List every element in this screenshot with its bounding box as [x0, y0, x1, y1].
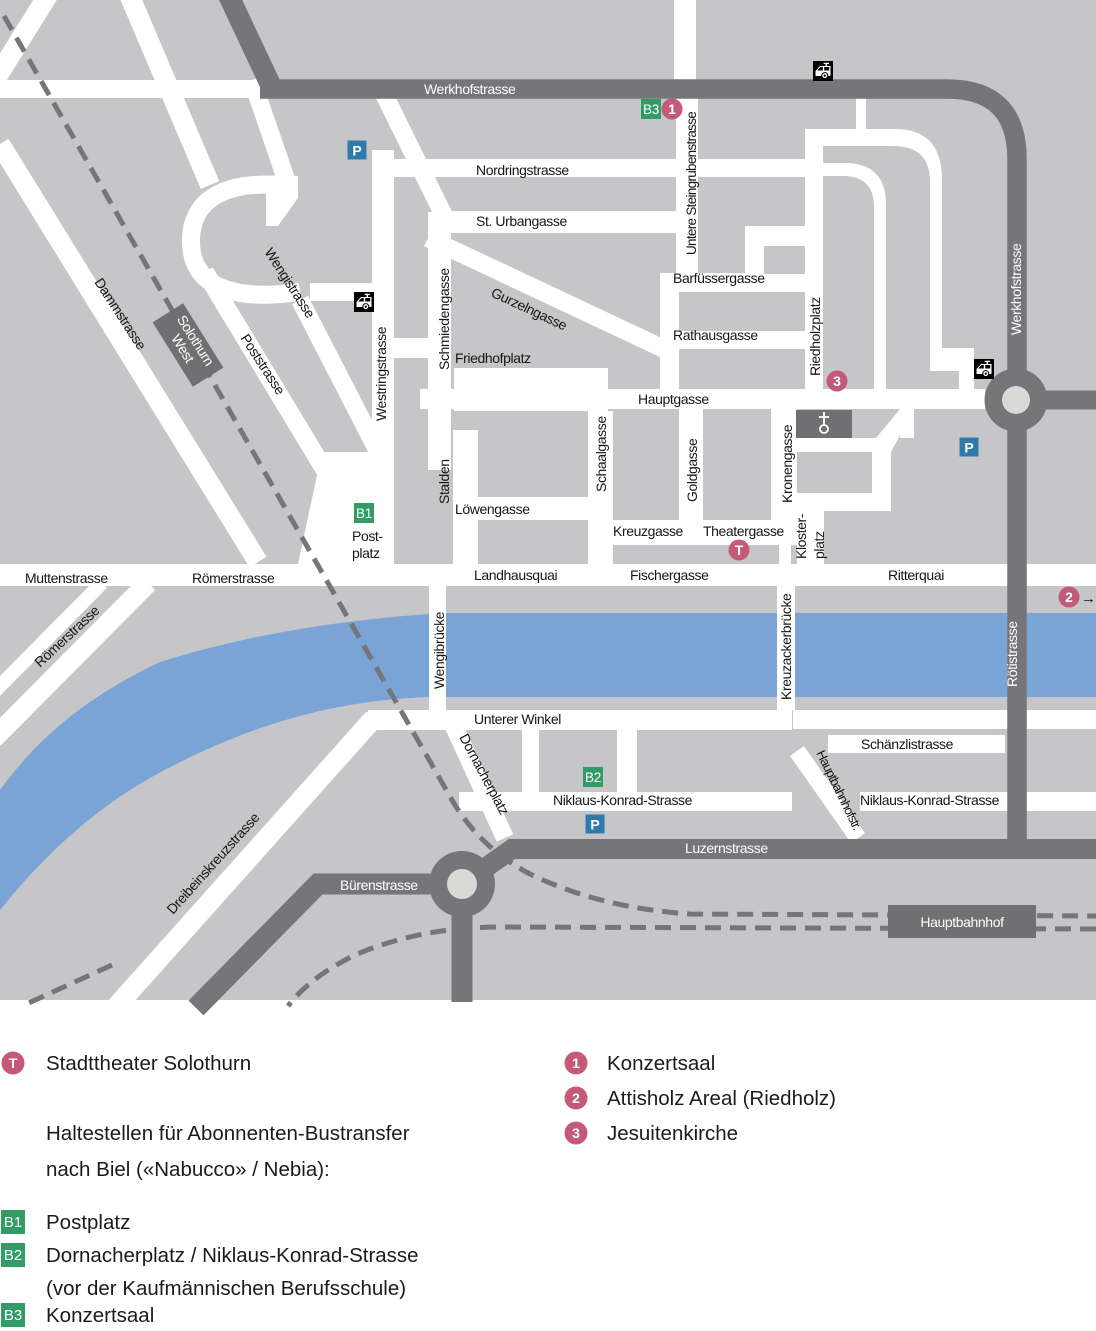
svg-text:P: P [964, 440, 973, 456]
svg-text:B1: B1 [356, 506, 372, 521]
svg-text:Untere Steingrubenstrasse: Untere Steingrubenstrasse [684, 112, 699, 255]
svg-text:Kronengasse: Kronengasse [779, 424, 795, 503]
svg-text:Dornacherplatz / Niklaus-Konra: Dornacherplatz / Niklaus-Konrad-Strasse [46, 1244, 419, 1267]
svg-text:Jesuitenkirche: Jesuitenkirche [607, 1122, 738, 1145]
svg-text:→: → [1081, 590, 1096, 607]
svg-text:Bürenstrasse: Bürenstrasse [340, 877, 418, 893]
svg-text:T: T [735, 542, 744, 558]
svg-text:Löwengasse: Löwengasse [455, 501, 530, 517]
svg-text:Schaalgasse: Schaalgasse [593, 416, 609, 492]
svg-text:Stadttheater Solothurn: Stadttheater Solothurn [46, 1052, 251, 1075]
svg-text:Westringstrasse: Westringstrasse [373, 326, 389, 421]
svg-text:1: 1 [668, 101, 676, 117]
svg-text:Werkhofstrasse: Werkhofstrasse [1008, 243, 1024, 335]
svg-text:Riedholzplatz: Riedholzplatz [807, 297, 823, 376]
svg-text:Kreuzackerbrücke: Kreuzackerbrücke [778, 593, 794, 700]
svg-text:2: 2 [1065, 589, 1073, 605]
svg-text:B3: B3 [4, 1307, 22, 1324]
svg-text:platz: platz [352, 545, 380, 561]
svg-text:St. Urbangasse: St. Urbangasse [476, 213, 568, 229]
svg-text:B3: B3 [643, 102, 659, 117]
svg-text:Niklaus-Konrad-Strasse: Niklaus-Konrad-Strasse [553, 792, 693, 808]
svg-text:Friedhofplatz: Friedhofplatz [455, 350, 531, 366]
svg-text:Wengibrücke: Wengibrücke [431, 611, 447, 689]
svg-text:B2: B2 [4, 1247, 22, 1264]
svg-text:Römerstrasse: Römerstrasse [192, 570, 275, 586]
svg-text:Kreuzgasse: Kreuzgasse [613, 523, 684, 539]
svg-text:Kloster-: Kloster- [793, 513, 809, 559]
svg-text:Goldgasse: Goldgasse [684, 438, 700, 502]
svg-text:T: T [9, 1055, 18, 1071]
svg-text:2: 2 [572, 1090, 580, 1106]
svg-text:Unterer Winkel: Unterer Winkel [474, 711, 561, 727]
svg-text:Postplatz: Postplatz [46, 1211, 130, 1234]
svg-text:Attisholz Areal (Riedholz): Attisholz Areal (Riedholz) [607, 1087, 836, 1110]
svg-text:Haltestellen für Abonnenten-Bu: Haltestellen für Abonnenten-Bustransfer [46, 1122, 410, 1145]
svg-text:P: P [590, 817, 599, 833]
svg-text:Muttenstrasse: Muttenstrasse [25, 570, 108, 586]
svg-text:B1: B1 [4, 1214, 22, 1231]
svg-text:Rathausgasse: Rathausgasse [673, 327, 758, 343]
svg-text:3: 3 [572, 1125, 580, 1141]
svg-text:Niklaus-Konrad-Strasse: Niklaus-Konrad-Strasse [860, 792, 1000, 808]
svg-text:3: 3 [833, 373, 841, 389]
svg-text:Landhausquai: Landhausquai [474, 567, 557, 583]
svg-text:Schänzlistrasse: Schänzlistrasse [861, 736, 954, 752]
svg-text:P: P [352, 143, 361, 159]
svg-text:Konzertsaal: Konzertsaal [607, 1052, 715, 1075]
svg-text:Barfüssergasse: Barfüssergasse [673, 270, 765, 286]
svg-text:Konzertsaal: Konzertsaal [46, 1304, 154, 1327]
svg-text:1: 1 [572, 1055, 580, 1071]
svg-text:platz: platz [811, 531, 827, 559]
svg-text:Post-: Post- [352, 528, 383, 544]
svg-text:(vor der Kaufmännischen Berufs: (vor der Kaufmännischen Berufsschule) [46, 1277, 406, 1300]
svg-text:Hauptgasse: Hauptgasse [638, 391, 709, 407]
svg-text:Schmiedengasse: Schmiedengasse [436, 268, 452, 370]
svg-text:Hauptbahnhof: Hauptbahnhof [920, 914, 1004, 930]
svg-text:Stalden: Stalden [436, 459, 452, 504]
svg-text:Rötistrasse: Rötistrasse [1004, 621, 1020, 687]
svg-text:Theatergasse: Theatergasse [703, 523, 784, 539]
svg-text:Werkhofstrasse: Werkhofstrasse [424, 81, 516, 97]
svg-text:nach Biel («Nabucco» / Nebia):: nach Biel («Nabucco» / Nebia): [46, 1158, 330, 1181]
svg-text:Fischergasse: Fischergasse [630, 567, 709, 583]
svg-text:Ritterquai: Ritterquai [888, 567, 944, 583]
svg-text:Luzernstrasse: Luzernstrasse [685, 840, 768, 856]
svg-text:B2: B2 [585, 770, 601, 785]
svg-text:Nordringstrasse: Nordringstrasse [476, 162, 569, 178]
